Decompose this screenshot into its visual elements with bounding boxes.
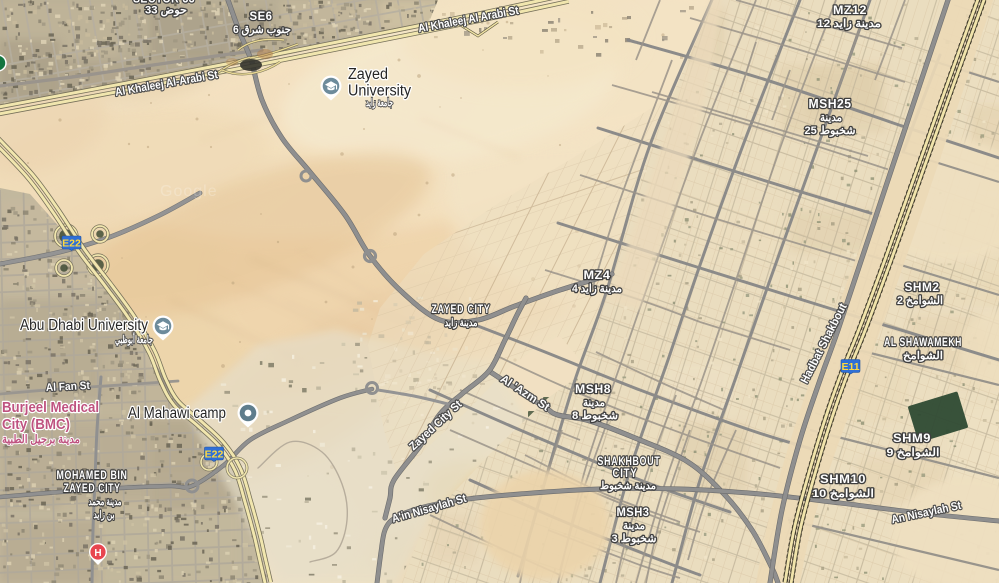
svg-text:Zayed: Zayed bbox=[348, 66, 388, 83]
svg-text:MSH25: MSH25 bbox=[809, 97, 852, 111]
svg-text:حوض 33: حوض 33 bbox=[145, 5, 187, 17]
svg-text:MOHAMED BIN: MOHAMED BIN bbox=[57, 470, 128, 482]
svg-text:Burjeel Medical: Burjeel Medical bbox=[2, 400, 99, 416]
svg-text:Al Fan St: Al Fan St bbox=[46, 380, 91, 394]
svg-text:Abu Dhabi University: Abu Dhabi University bbox=[20, 317, 148, 334]
svg-text:MSH8: MSH8 bbox=[575, 382, 611, 396]
svg-text:الشوامخ 2: الشوامخ 2 bbox=[897, 295, 943, 307]
svg-text:E11: E11 bbox=[841, 361, 859, 373]
svg-text:مدينة: مدينة bbox=[623, 520, 645, 532]
svg-text:شخبوط 25: شخبوط 25 bbox=[805, 125, 856, 137]
svg-text:Google: Google bbox=[160, 183, 218, 200]
svg-text:مدينة: مدينة bbox=[583, 397, 605, 409]
svg-text:MZ4: MZ4 bbox=[584, 268, 611, 282]
svg-text:جامعة أبوظبي: جامعة أبوظبي bbox=[115, 332, 153, 347]
svg-text:E22: E22 bbox=[205, 448, 224, 460]
svg-text:بن زايد: بن زايد bbox=[94, 509, 115, 521]
svg-text:Al Mahawi camp: Al Mahawi camp bbox=[128, 405, 226, 422]
svg-text:جامعة زايد: جامعة زايد bbox=[366, 97, 393, 109]
svg-text:مدينة زايد: مدينة زايد bbox=[445, 317, 478, 329]
svg-text:SHM10: SHM10 bbox=[820, 472, 866, 486]
svg-text:MSH3: MSH3 bbox=[617, 505, 650, 519]
svg-text:ZAYED CITY: ZAYED CITY bbox=[432, 304, 491, 316]
svg-text:مدينة برجيل الطبية: مدينة برجيل الطبية bbox=[2, 433, 80, 447]
svg-text:مدينة محمد: مدينة محمد bbox=[89, 496, 122, 508]
svg-text:مدينة زايد 12: مدينة زايد 12 bbox=[817, 18, 881, 30]
svg-text:City (BMC): City (BMC) bbox=[2, 417, 70, 433]
svg-text:SHAKHBOUT: SHAKHBOUT bbox=[598, 456, 661, 468]
svg-text:مدينة زايد 4: مدينة زايد 4 bbox=[572, 283, 622, 295]
svg-text:جنوب شرق 6: جنوب شرق 6 bbox=[233, 24, 291, 36]
svg-text:الشوامخ: الشوامخ bbox=[903, 350, 943, 362]
svg-text:SHM2: SHM2 bbox=[905, 280, 940, 294]
svg-text:مدينة: مدينة bbox=[820, 112, 842, 124]
svg-text:SE6: SE6 bbox=[250, 11, 273, 23]
svg-text:AL SHAWAMEKH: AL SHAWAMEKH bbox=[884, 337, 962, 349]
svg-text:H: H bbox=[94, 548, 101, 559]
svg-text:E22: E22 bbox=[62, 237, 81, 249]
svg-text:مدينة شخبوط: مدينة شخبوط bbox=[600, 480, 656, 492]
svg-text:ZAYED CITY: ZAYED CITY bbox=[64, 483, 121, 495]
svg-text:شخبوط 3: شخبوط 3 bbox=[612, 533, 657, 545]
svg-text:الشوامخ 9: الشوامخ 9 bbox=[887, 447, 940, 459]
svg-text:الشوامخ 10: الشوامخ 10 bbox=[812, 488, 874, 500]
svg-text:SHM9: SHM9 bbox=[893, 431, 931, 445]
svg-text:CITY: CITY bbox=[613, 468, 638, 480]
svg-text:شخبوط 8: شخبوط 8 bbox=[572, 410, 618, 422]
svg-text:MZ12: MZ12 bbox=[833, 3, 867, 17]
